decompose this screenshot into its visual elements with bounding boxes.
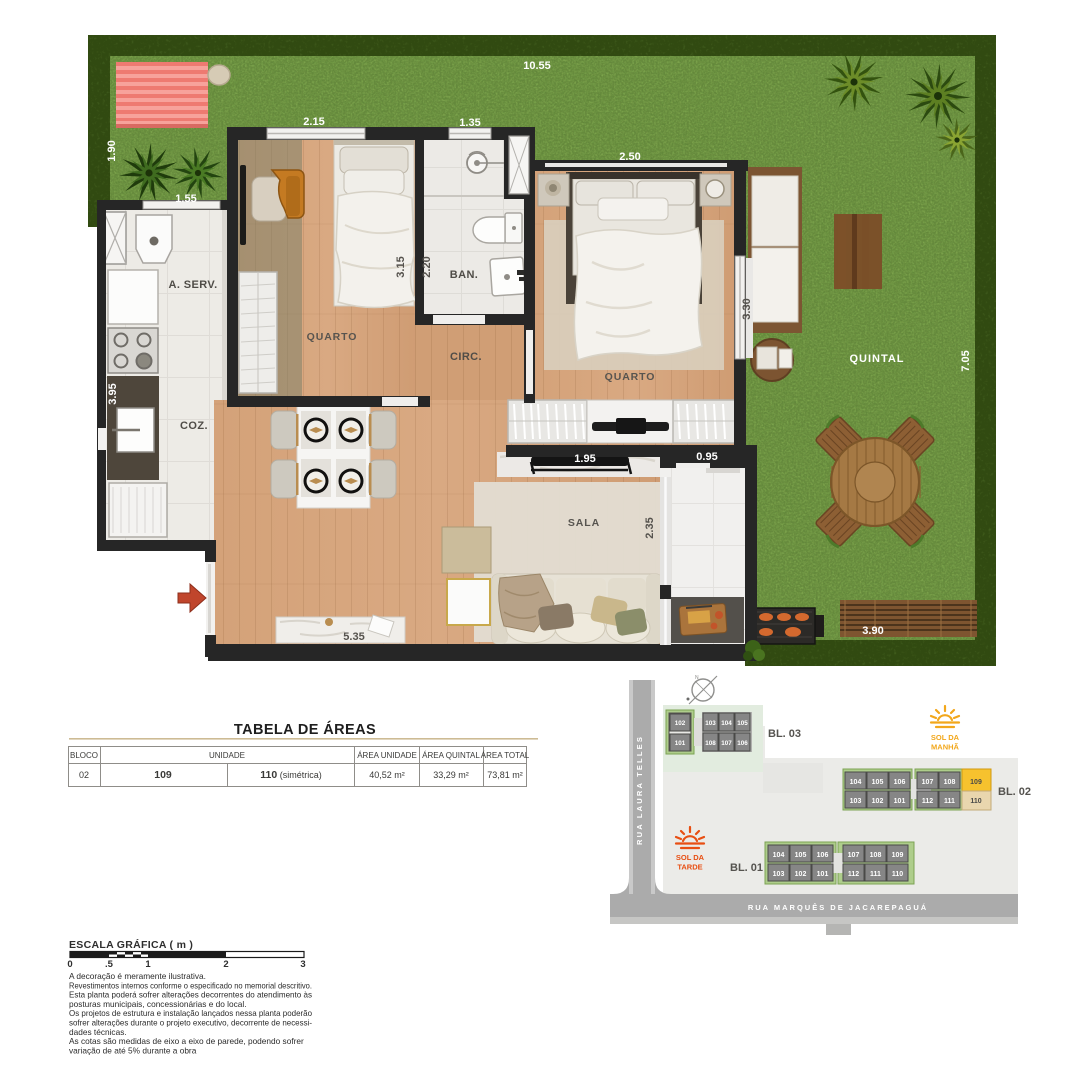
svg-text:QUARTO: QUARTO (307, 331, 358, 343)
svg-text:3.90: 3.90 (862, 625, 883, 637)
svg-text:108: 108 (870, 852, 882, 859)
svg-text:101: 101 (817, 871, 829, 878)
svg-text:106: 106 (817, 852, 829, 859)
svg-text:SOL DA: SOL DA (676, 853, 705, 862)
svg-text:2.50: 2.50 (619, 151, 640, 163)
svg-text:2.20: 2.20 (421, 256, 433, 277)
svg-text:5.35: 5.35 (343, 631, 364, 643)
svg-text:103: 103 (850, 798, 862, 805)
svg-text:0.95: 0.95 (696, 451, 717, 463)
svg-text:QUINTAL: QUINTAL (849, 353, 904, 365)
svg-text:TABELA DE ÁREAS: TABELA DE ÁREAS (234, 721, 376, 738)
svg-text:1.90: 1.90 (106, 140, 118, 161)
svg-text:1: 1 (145, 959, 151, 970)
svg-text:A. SERV.: A. SERV. (168, 279, 217, 291)
svg-text:73,81 m²: 73,81 m² (487, 770, 523, 780)
svg-text:3.30: 3.30 (741, 298, 753, 319)
svg-text:107: 107 (848, 852, 860, 859)
svg-text:2.35: 2.35 (644, 517, 656, 538)
svg-text:3.95: 3.95 (107, 383, 119, 404)
svg-text:110: 110 (892, 871, 903, 878)
svg-text:1.95: 1.95 (574, 453, 595, 465)
svg-text:104: 104 (850, 779, 862, 786)
svg-text:105: 105 (795, 852, 807, 859)
svg-text:MANHÃ: MANHÃ (931, 743, 959, 752)
svg-text:ESCALA GRÁFICA ( m ): ESCALA GRÁFICA ( m ) (69, 938, 193, 951)
svg-text:105: 105 (872, 779, 884, 786)
svg-text:N: N (695, 675, 699, 681)
svg-text:RUA MARQUÊS DE JACAREPAGUÁ: RUA MARQUÊS DE JACAREPAGUÁ (748, 903, 928, 912)
svg-text:1.55: 1.55 (175, 193, 196, 205)
svg-text:TARDE: TARDE (677, 863, 702, 872)
svg-text:QUARTO: QUARTO (605, 371, 656, 383)
svg-text:7.05: 7.05 (960, 350, 972, 371)
svg-text:107: 107 (922, 779, 934, 786)
svg-text:108: 108 (705, 740, 716, 747)
svg-text:107: 107 (721, 740, 732, 747)
svg-text:3: 3 (300, 959, 305, 970)
svg-text:101: 101 (894, 798, 906, 805)
svg-text:111: 111 (944, 798, 955, 805)
svg-text:RUA LAURA TELLES: RUA LAURA TELLES (635, 735, 644, 845)
svg-text:104: 104 (773, 852, 785, 859)
svg-text:BL. 02: BL. 02 (998, 786, 1031, 798)
svg-text:108: 108 (944, 779, 956, 786)
svg-text:CIRC.: CIRC. (450, 351, 482, 363)
svg-text:02: 02 (79, 770, 89, 780)
svg-text:106: 106 (737, 740, 748, 747)
svg-text:102: 102 (795, 871, 807, 878)
svg-text:40,52 m²: 40,52 m² (369, 770, 405, 780)
svg-text:2: 2 (223, 959, 228, 970)
svg-text:110 (simétrica): 110 (simétrica) (260, 769, 321, 781)
svg-text:102: 102 (675, 720, 686, 727)
svg-text:3.15: 3.15 (395, 256, 407, 277)
svg-text:2.15: 2.15 (303, 116, 324, 128)
svg-text:112: 112 (922, 798, 933, 805)
svg-text:111: 111 (870, 871, 881, 878)
svg-text:BL. 03: BL. 03 (768, 728, 801, 740)
svg-text:BLOCO: BLOCO (70, 751, 98, 760)
svg-text:104: 104 (721, 720, 732, 727)
svg-text:variação de até 5% durante a o: variação de até 5% durante a obra (69, 1045, 197, 1055)
svg-text:10.55: 10.55 (523, 60, 551, 72)
svg-text:110: 110 (970, 798, 981, 805)
svg-text:101: 101 (675, 740, 686, 747)
svg-text:109: 109 (970, 779, 982, 786)
svg-text:UNIDADE: UNIDADE (209, 751, 245, 760)
svg-text:103: 103 (773, 871, 785, 878)
svg-text:1.35: 1.35 (459, 117, 480, 129)
svg-text:102: 102 (872, 798, 884, 805)
svg-text:0: 0 (67, 959, 72, 970)
svg-text:ÁREA UNIDADE: ÁREA UNIDADE (357, 751, 417, 760)
svg-text:SOL DA: SOL DA (931, 733, 960, 742)
svg-text:BAN.: BAN. (450, 269, 479, 281)
svg-text:109: 109 (892, 852, 904, 859)
svg-text:33,29 m²: 33,29 m² (433, 770, 469, 780)
svg-text:106: 106 (894, 779, 906, 786)
svg-text:COZ.: COZ. (180, 420, 208, 432)
svg-text:ÁREA QUINTAL: ÁREA QUINTAL (422, 751, 480, 760)
svg-text:105: 105 (737, 720, 748, 727)
svg-text:.5: .5 (105, 959, 114, 970)
svg-text:112: 112 (848, 871, 859, 878)
svg-text:ÁREA TOTAL: ÁREA TOTAL (481, 751, 530, 760)
svg-text:BL. 01: BL. 01 (730, 862, 763, 874)
svg-text:103: 103 (705, 720, 716, 727)
svg-text:SALA: SALA (568, 517, 600, 529)
svg-text:109: 109 (154, 769, 172, 781)
